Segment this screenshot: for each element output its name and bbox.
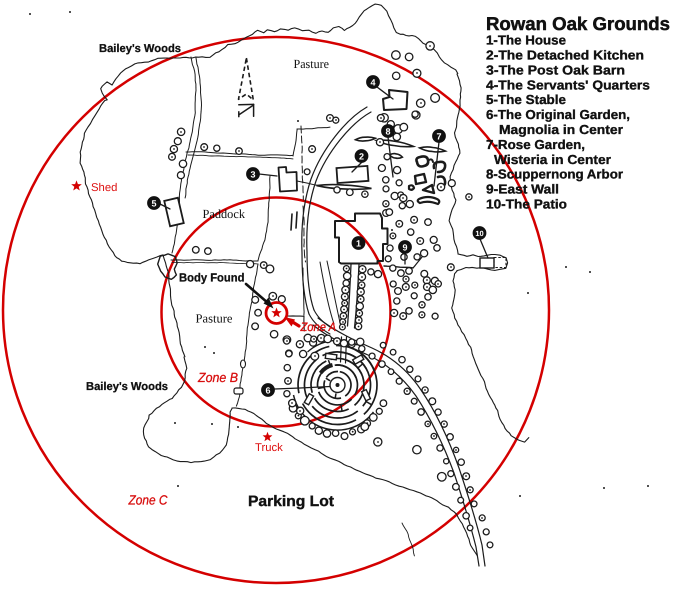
svg-text:Bailey's Woods: Bailey's Woods <box>99 43 181 55</box>
svg-text:Pasture: Pasture <box>196 312 233 326</box>
svg-text:3: 3 <box>250 170 255 180</box>
svg-text:7-Rose Garden,: 7-Rose Garden, <box>486 137 585 152</box>
svg-text:Shed: Shed <box>91 182 117 194</box>
svg-text:Zone C: Zone C <box>128 493 168 508</box>
svg-text:2: 2 <box>359 152 364 162</box>
svg-text:10: 10 <box>475 229 483 238</box>
svg-text:4-The Servants' Quarters: 4-The Servants' Quarters <box>486 77 650 92</box>
svg-text:10-The Patio: 10-The Patio <box>486 197 567 212</box>
svg-text:Zone A: Zone A <box>300 320 336 334</box>
svg-text:Paddock: Paddock <box>203 207 246 221</box>
svg-text:5: 5 <box>151 199 156 209</box>
svg-text:8: 8 <box>385 127 390 137</box>
svg-text:8-Scuppernong Arbor: 8-Scuppernong Arbor <box>486 167 623 182</box>
svg-text:1-The House: 1-The House <box>486 33 566 48</box>
svg-text:Body Found: Body Found <box>179 271 245 285</box>
svg-text:4: 4 <box>370 78 375 88</box>
svg-text:1: 1 <box>356 239 361 249</box>
svg-text:Parking Lot: Parking Lot <box>248 493 334 510</box>
svg-text:3-The Post Oak Barn: 3-The Post Oak Barn <box>486 62 625 77</box>
svg-text:5-The Stable: 5-The Stable <box>486 92 566 107</box>
svg-text:7: 7 <box>436 132 441 142</box>
svg-text:6-The Original Garden,: 6-The Original Garden, <box>486 107 630 122</box>
svg-text:Zone B: Zone B <box>197 370 238 385</box>
svg-text:Pasture: Pasture <box>294 57 330 71</box>
svg-text:2-The Detached Kitchen: 2-The Detached Kitchen <box>486 48 644 63</box>
svg-text:Bailey's Woods: Bailey's Woods <box>86 381 168 393</box>
svg-text:9-East Wall: 9-East Wall <box>486 182 559 197</box>
svg-text:Truck: Truck <box>255 442 283 454</box>
svg-text:Wisteria in Center: Wisteria in Center <box>494 152 611 167</box>
svg-text:6: 6 <box>265 386 270 396</box>
svg-text:Magnolia in Center: Magnolia in Center <box>499 122 623 137</box>
svg-text:9: 9 <box>402 243 407 253</box>
svg-text:Rowan Oak Grounds: Rowan Oak Grounds <box>486 13 670 34</box>
